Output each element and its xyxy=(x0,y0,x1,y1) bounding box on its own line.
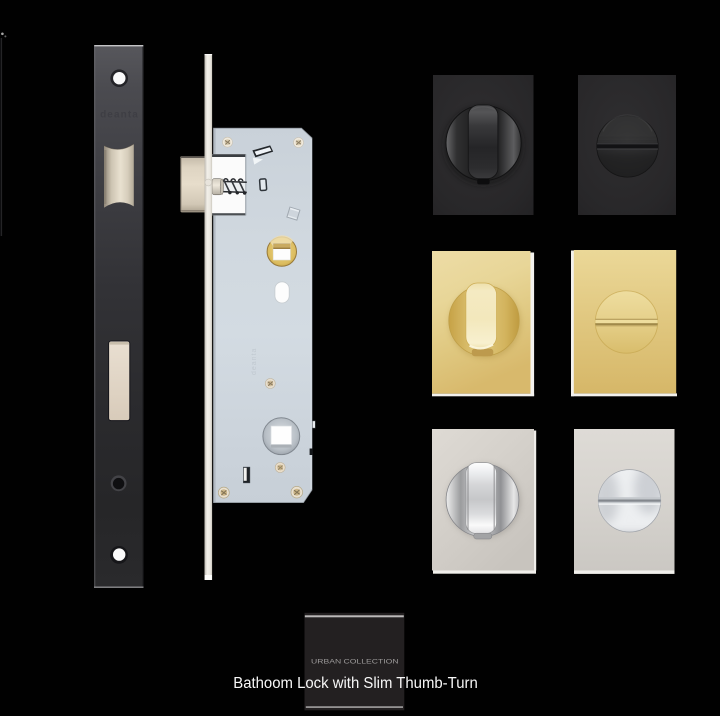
svg-text:URBAN COLLECTION: URBAN COLLECTION xyxy=(311,659,399,666)
svg-text:Bathoom Lock with Slim Thumb-T: Bathoom Lock with Slim Thumb-Turn xyxy=(233,675,478,692)
svg-text:deanta: deanta xyxy=(251,348,258,375)
svg-text:deanta: deanta xyxy=(100,110,139,121)
